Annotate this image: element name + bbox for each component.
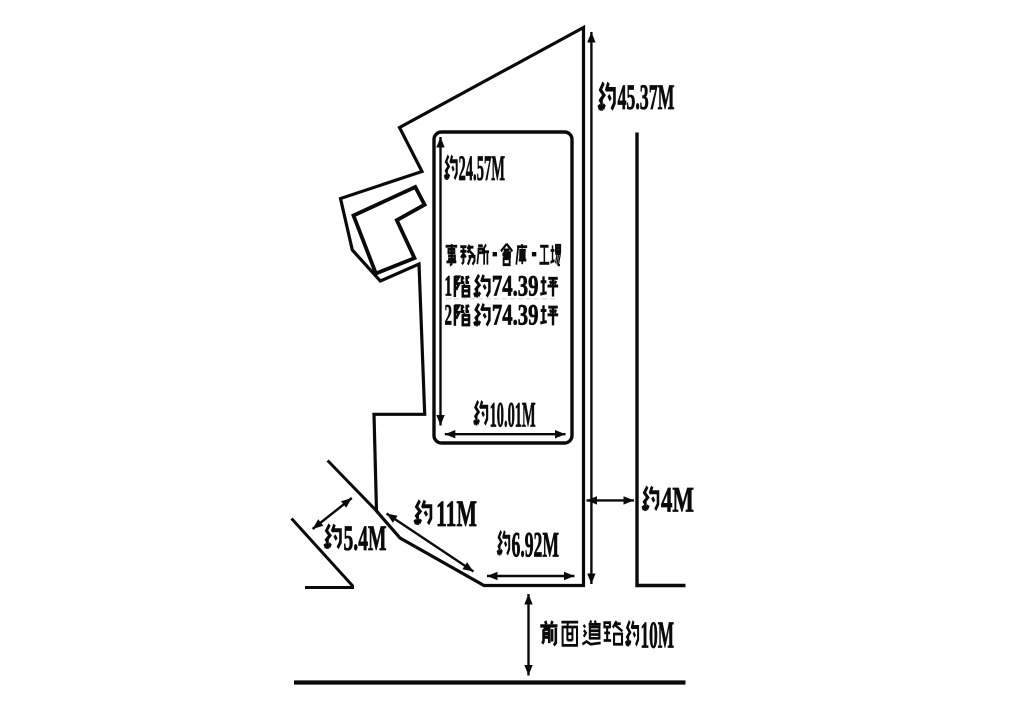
svg-text:74.39: 74.39 (492, 298, 539, 331)
svg-text:10M: 10M (641, 615, 675, 657)
svg-text:10.01M: 10.01M (490, 395, 536, 435)
svg-text:45.37M: 45.37M (618, 77, 675, 117)
svg-text:6.92M: 6.92M (512, 525, 560, 565)
svg-text:4M: 4M (661, 480, 694, 520)
svg-text:5.4M: 5.4M (344, 518, 387, 558)
svg-text:11M: 11M (436, 494, 477, 535)
svg-text:24.57M: 24.57M (459, 148, 506, 188)
svg-text:2: 2 (445, 298, 453, 331)
